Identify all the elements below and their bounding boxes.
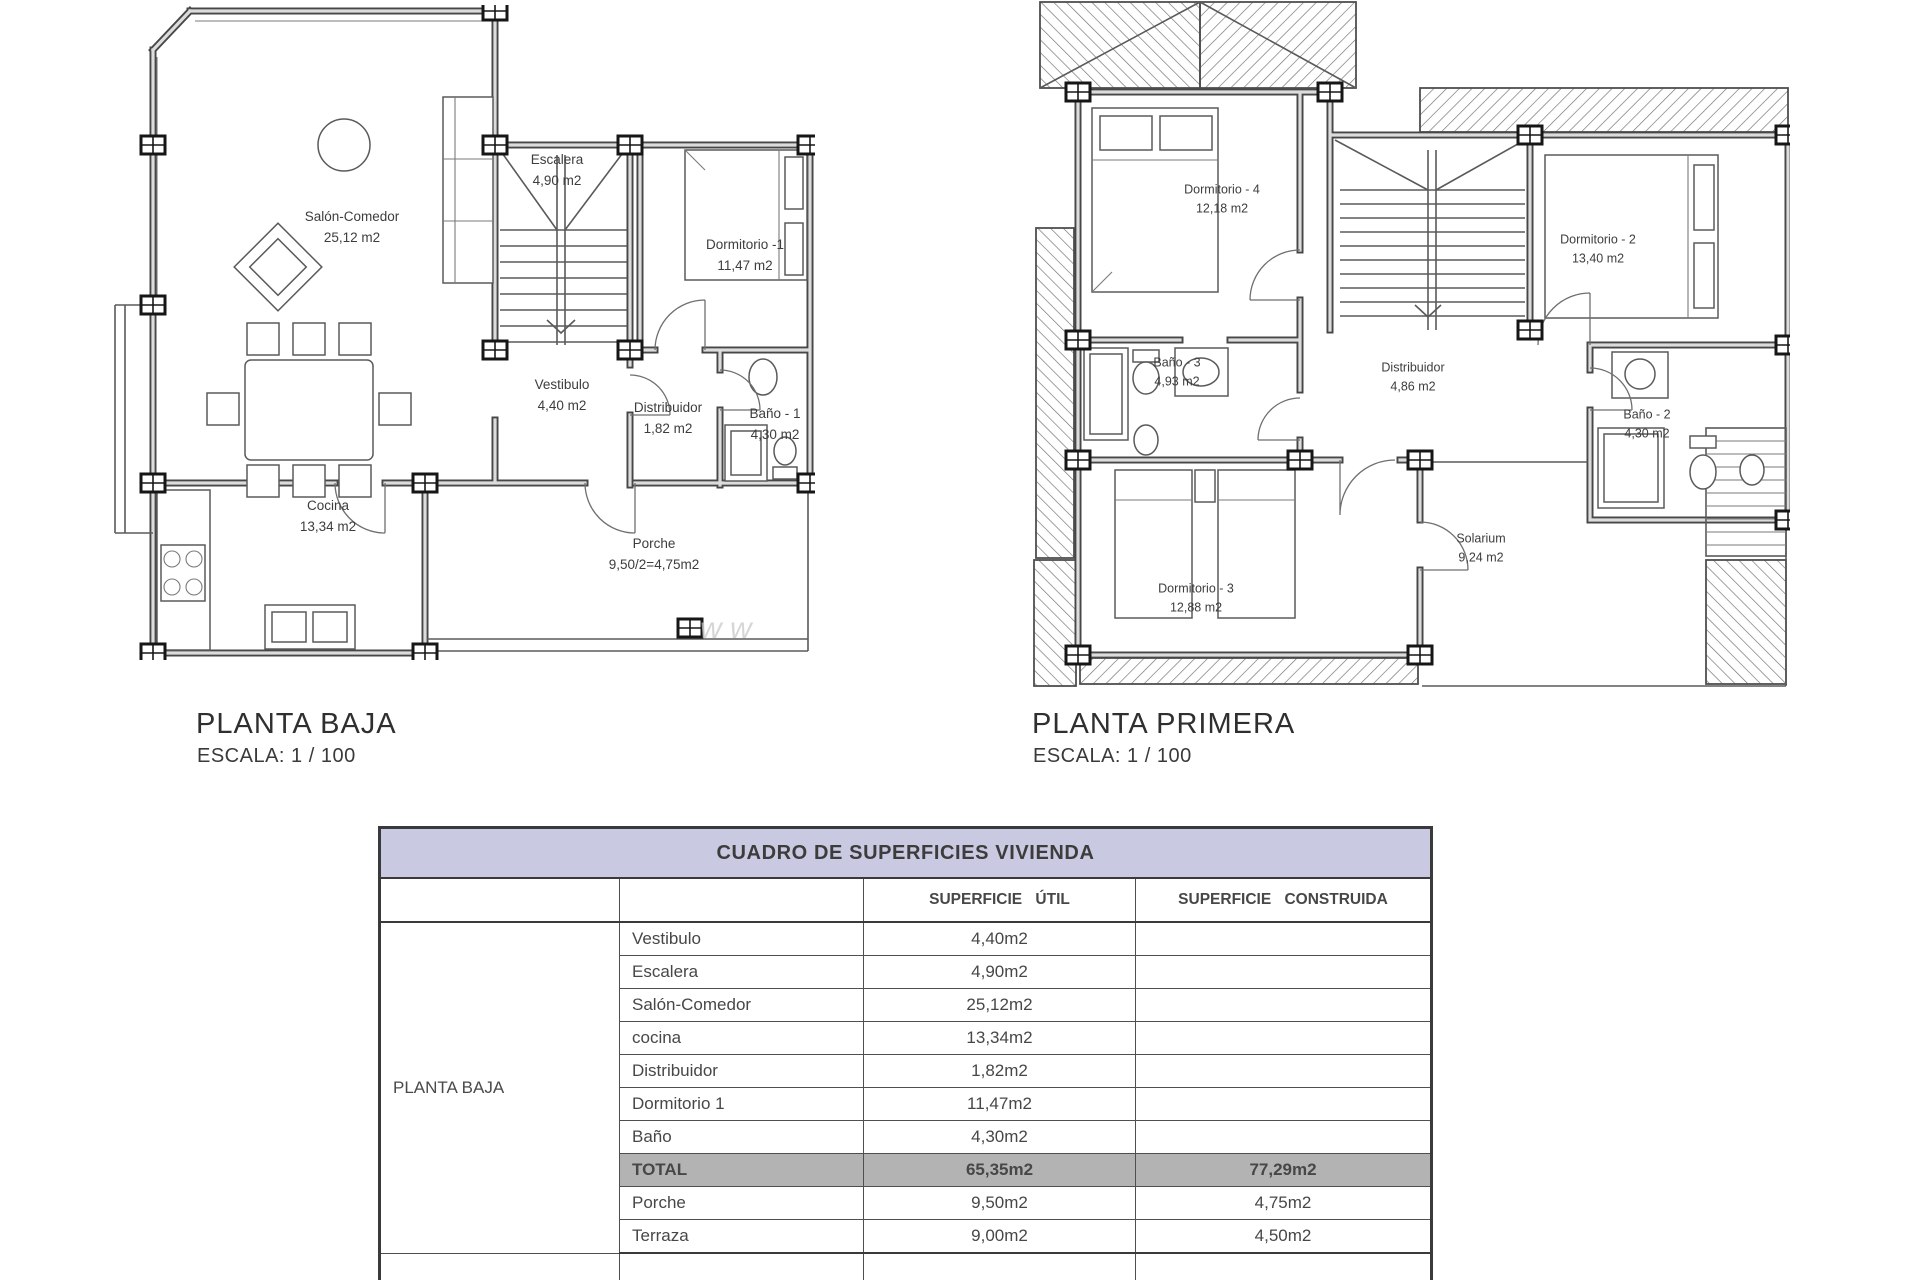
row-room: Escalera xyxy=(620,956,864,989)
row-construida xyxy=(1136,989,1432,1022)
room-area: 12,88 m2 xyxy=(1158,598,1234,617)
table-row: PLANTA BAJA Vestibulo 4,40m2 xyxy=(380,922,1432,956)
watermark: w w xyxy=(700,612,752,646)
room-name: Baño - 2 xyxy=(1623,405,1670,424)
planta-baja-drawing xyxy=(95,5,815,660)
room-label-vestibulo: Vestibulo 4,40 m2 xyxy=(535,375,590,417)
table-title: CUADRO DE SUPERFICIES VIVIENDA xyxy=(380,828,1432,879)
row-room: Terraza xyxy=(620,1220,864,1254)
room-label-solarium: Solarium 9,24 m2 xyxy=(1456,529,1505,567)
room-name: Salón-Comedor xyxy=(305,207,400,228)
room-label-cocina: Cocina 13,34 m2 xyxy=(300,496,356,538)
room-label-distribuidor-pp: Distribuidor 4,86 m2 xyxy=(1381,358,1444,396)
row-construida: 4,50m2 xyxy=(1136,1220,1432,1254)
row-util: 4,40m2 xyxy=(864,922,1136,956)
floor-plan-sheet: Salón-Comedor 25,12 m2 Escalera 4,90 m2 … xyxy=(0,0,1920,1280)
row-util: 4,90m2 xyxy=(864,956,1136,989)
row-util: 1,82m2 xyxy=(864,1055,1136,1088)
planta-primera-title: PLANTA PRIMERA xyxy=(1032,708,1295,741)
row-construida: 4,75m2 xyxy=(1136,1187,1432,1220)
outside-stair xyxy=(1706,428,1786,556)
col-header-superficie-util: SUPERFICIE ÚTIL xyxy=(864,878,1136,922)
room-name: Cocina xyxy=(300,496,356,517)
dining-table-set xyxy=(207,323,411,497)
row-util: 65,35m2 xyxy=(864,1154,1136,1187)
row-construida xyxy=(1136,956,1432,989)
row-util: 4,30m2 xyxy=(864,1121,1136,1154)
room-area: 9,24 m2 xyxy=(1456,548,1505,567)
table-header-row: SUPERFICIE ÚTIL SUPERFICIE CONSTRUIDA xyxy=(380,878,1432,922)
row-room: TOTAL xyxy=(620,1154,864,1187)
room-name: Dormitorio -1 xyxy=(706,235,784,256)
round-table xyxy=(318,119,370,171)
row-room: Distribuidor xyxy=(620,1055,864,1088)
room-label-escalera: Escalera 4,90 m2 xyxy=(531,150,584,192)
room-label-dormitorio-3: Dormitorio - 3 12,88 m2 xyxy=(1158,579,1234,617)
room-area: 9,50/2=4,75m2 xyxy=(609,555,699,576)
row-util: 9,50m2 xyxy=(864,1187,1136,1220)
row-construida: 77,29m2 xyxy=(1136,1154,1432,1187)
row-construida xyxy=(1136,1022,1432,1055)
row-construida xyxy=(1136,1121,1432,1154)
room-name: Baño - 1 xyxy=(749,404,800,425)
living-room-furniture xyxy=(207,97,493,497)
room-name: Escalera xyxy=(531,150,584,171)
room-label-dormitorio-4: Dormitorio - 4 12,18 m2 xyxy=(1184,180,1260,218)
row-room: Baño xyxy=(620,1121,864,1154)
planta-primera-drawing xyxy=(1000,0,1790,690)
room-name: Porche xyxy=(609,534,699,555)
room-name: Distribuidor xyxy=(1381,358,1444,377)
room-name: Dormitorio - 2 xyxy=(1560,230,1636,249)
room-area: 11,47 m2 xyxy=(706,256,784,277)
room-area: 25,12 m2 xyxy=(305,228,400,249)
room-area: 4,30 m2 xyxy=(749,425,800,446)
room-area: 1,82 m2 xyxy=(634,419,702,440)
room-area: 4,86 m2 xyxy=(1381,377,1444,396)
room-name: Dormitorio - 3 xyxy=(1158,579,1234,598)
table-row-cut xyxy=(380,1253,1432,1280)
row-room: Dormitorio 1 xyxy=(620,1088,864,1121)
table-title-row: CUADRO DE SUPERFICIES VIVIENDA xyxy=(380,828,1432,879)
room-label-bano-2: Baño - 2 4,30 m2 xyxy=(1623,405,1670,443)
col-header-superficie-construida: SUPERFICIE CONSTRUIDA xyxy=(1136,878,1432,922)
row-construida xyxy=(1136,922,1432,956)
room-area: 4,30 m2 xyxy=(1623,424,1670,443)
room-name: Distribuidor xyxy=(634,398,702,419)
room-name: Solarium xyxy=(1456,529,1505,548)
room-area: 13,40 m2 xyxy=(1560,249,1636,268)
row-util: 13,34m2 xyxy=(864,1022,1136,1055)
row-room: Salón-Comedor xyxy=(620,989,864,1022)
room-name: Vestibulo xyxy=(535,375,590,396)
room-area: 13,34 m2 xyxy=(300,517,356,538)
room-area: 4,90 m2 xyxy=(531,171,584,192)
row-room: Porche xyxy=(620,1187,864,1220)
planta-baja-title: PLANTA BAJA xyxy=(196,708,397,741)
planta-baja-scale: ESCALA: 1 / 100 xyxy=(197,745,356,768)
room-label-porche: Porche 9,50/2=4,75m2 xyxy=(609,534,699,576)
row-util: 25,12m2 xyxy=(864,989,1136,1022)
room-label-bano-1: Baño - 1 4,30 m2 xyxy=(749,404,800,446)
row-util: 11,47m2 xyxy=(864,1088,1136,1121)
room-name: Dormitorio - 4 xyxy=(1184,180,1260,199)
row-construida xyxy=(1136,1088,1432,1121)
terrace-strip xyxy=(115,305,153,533)
room-name: Baño - 3 xyxy=(1153,353,1200,372)
room-label-salon-comedor: Salón-Comedor 25,12 m2 xyxy=(305,207,400,249)
row-room: Vestibulo xyxy=(620,922,864,956)
room-label-distribuidor-pb: Distribuidor 1,82 m2 xyxy=(634,398,702,440)
stairs xyxy=(1335,140,1525,330)
room-area: 4,93 m2 xyxy=(1153,372,1200,391)
row-construida xyxy=(1136,1055,1432,1088)
room-area: 4,40 m2 xyxy=(535,396,590,417)
room-label-bano-3: Baño - 3 4,93 m2 xyxy=(1153,353,1200,391)
room-label-dormitorio-1: Dormitorio -1 11,47 m2 xyxy=(706,235,784,277)
surface-table: CUADRO DE SUPERFICIES VIVIENDA SUPERFICI… xyxy=(378,826,1433,1280)
planta-primera-scale: ESCALA: 1 / 100 xyxy=(1033,745,1192,768)
room-area: 12,18 m2 xyxy=(1184,199,1260,218)
row-util: 9,00m2 xyxy=(864,1220,1136,1254)
room-label-dormitorio-2: Dormitorio - 2 13,40 m2 xyxy=(1560,230,1636,268)
section-label: PLANTA BAJA xyxy=(380,922,620,1253)
row-room: cocina xyxy=(620,1022,864,1055)
